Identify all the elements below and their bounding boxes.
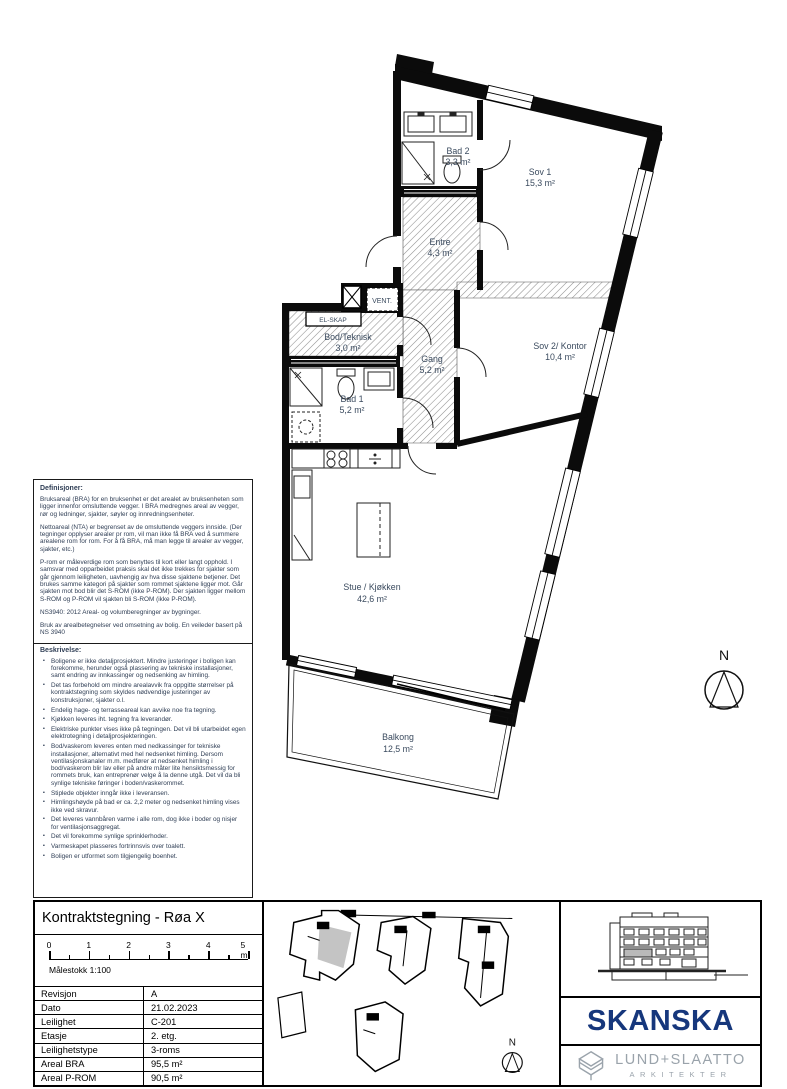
bad2-bottom-wall [400, 186, 480, 197]
description-bullet: Varmeskapet plasseres fortrinnsvis over … [51, 843, 246, 850]
title-block-table: Revisjon A Dato 21.02.2023 Leilighet C-2… [35, 987, 262, 1085]
left-wall-stue [282, 445, 290, 660]
scale-tick-label: 4 [206, 940, 211, 950]
svg-text:5,2 m²: 5,2 m² [420, 365, 445, 375]
scale-tick-label: 3 [166, 940, 171, 950]
scale-ruler [49, 950, 248, 960]
description-bullet: Det vil forekomme synlige sprinklerhoder… [51, 833, 246, 840]
row-value: 3-roms [143, 1044, 262, 1057]
sov2-bottom-wall [457, 414, 587, 444]
row-value: 21.02.2023 [143, 1001, 262, 1014]
table-row: Revisjon A [35, 987, 262, 1001]
scale-tick-label: 2 [126, 940, 131, 950]
door-sov1 [480, 222, 508, 250]
row-label: Revisjon [35, 987, 143, 1000]
room-label-bod: Bod/Teknisk [324, 332, 372, 342]
definitions-title: Definisjoner: [40, 485, 246, 492]
description-bullet: Kjøkken leveres iht. tegning fra leveran… [51, 716, 246, 723]
branding-column: SKANSKA LUND+SLAATTO ARKITEKTER [561, 902, 760, 1085]
definition-paragraph: NS3940: 2012 Areal- og volumberegninger … [40, 609, 246, 616]
description-bullet: Elektriske punkter vises ikke på tegning… [51, 726, 246, 741]
description-bullet: Det tas forbehold om mindre arealavvik f… [51, 682, 246, 704]
description-bullet: Endelig hage- og terrasseareal kan avvik… [51, 707, 246, 714]
corridor-wall-a [477, 100, 483, 140]
room-label-balkong: Balkong [382, 732, 414, 742]
north-arrow: N [705, 647, 743, 709]
drawing-title: Kontraktstegning - Røa X [35, 902, 262, 935]
bod-gang-wall-a [397, 311, 403, 317]
building-elevation-icon [562, 903, 759, 995]
bad1-right-wall-a [397, 367, 403, 398]
definition-paragraph: Bruk av arealbetegnelser ved omsetning a… [40, 622, 246, 637]
svg-text:3,3 m²: 3,3 m² [446, 157, 471, 167]
gang-bottom-wall-b [436, 443, 457, 449]
skanska-logo: SKANSKA [561, 998, 760, 1046]
row-label: Etasje [35, 1029, 143, 1042]
room-label-sov1: Sov 1 [529, 167, 552, 177]
row-value: 90,5 m² [143, 1072, 262, 1085]
building-elevation-cell [561, 902, 760, 998]
svg-text:42,6 m²: 42,6 m² [357, 594, 387, 604]
scale-bar: 0 1 2 3 4 5 m Målestokk 1:100 [35, 935, 262, 987]
row-value: C-201 [143, 1015, 262, 1028]
gang-wall-b [454, 377, 460, 445]
key-plan-cell: N [264, 902, 561, 1085]
row-value: A [143, 987, 262, 1000]
description-bullet: Bod/vaskerom leveres enten med nedkassin… [51, 743, 246, 787]
row-value: 95,5 m² [143, 1058, 262, 1071]
title-block: Kontraktstegning - Røa X 0 1 2 3 4 5 m [33, 900, 762, 1087]
row-label: Areal P-ROM [35, 1072, 143, 1085]
definitions-panel: Definisjoner: Bruksareal (BRA) for en br… [33, 479, 253, 898]
room-label-stue: Stue / Kjøkken [343, 582, 400, 592]
door-stue [408, 446, 436, 474]
left-wall-upper [393, 71, 401, 236]
room-label-gang: Gang [421, 354, 443, 364]
lund-slaatto-mark-icon [575, 1048, 607, 1084]
door-bad2 [480, 140, 510, 170]
room-label-bad2: Bad 2 [447, 146, 470, 156]
table-row: Leilighet C-201 [35, 1015, 262, 1029]
svg-text:N: N [509, 1038, 516, 1049]
stue-top-wall [287, 443, 403, 449]
room-label-entre: Entre [429, 237, 450, 247]
room-label-sov2: Sov 2/ Kontor [533, 341, 586, 351]
description-bullet: Boligen er utformet som tilgjengelig boe… [51, 853, 246, 860]
description-bullet: Himlingshøyde på bad er ca. 2,2 meter og… [51, 799, 246, 814]
table-row: Leilighetstype 3-roms [35, 1044, 262, 1058]
table-row: Etasje 2. etg. [35, 1029, 262, 1043]
row-label: Leilighet [35, 1015, 143, 1028]
north-label: N [719, 647, 729, 663]
vent-label: VENT. [372, 298, 392, 305]
key-plan: N [264, 902, 559, 1085]
architect-logo: LUND+SLAATTO ARKITEKTER [561, 1046, 760, 1085]
gang-bottom-wall-a [403, 443, 408, 449]
svg-text:12,5 m²: 12,5 m² [383, 744, 413, 754]
table-row: Areal BRA 95,5 m² [35, 1058, 262, 1072]
row-label: Leilighetstype [35, 1044, 143, 1057]
corridor-wall-c [477, 250, 483, 290]
el-skap-label: EL-SKAP [319, 317, 346, 324]
contract-drawing-page: Bad 2 3,3 m² Sov 1 15,3 m² Entre 4,3 m² … [0, 0, 787, 1089]
definition-paragraph: Bruksareal (BRA) for en bruksenhet er de… [40, 496, 246, 518]
room-label-bad1: Bad 1 [341, 394, 364, 404]
scale-label: Målestokk 1:100 [49, 965, 248, 975]
architect-subtitle: ARKITEKTER [629, 1070, 731, 1079]
scale-tick-label: 0 [47, 940, 52, 950]
table-row: Dato 21.02.2023 [35, 1001, 262, 1015]
svg-text:5,2 m²: 5,2 m² [340, 405, 365, 415]
description-bullet: Det leveres vannbåren varme i alle rom, … [51, 816, 246, 831]
definition-paragraph: Nettoareal (NTA) er begrenset av de omsl… [40, 524, 246, 553]
description-title: Beskrivelse: [40, 647, 246, 654]
key-plan-outline-extra [278, 992, 306, 1038]
floor-plan: Bad 2 3,3 m² Sov 1 15,3 m² Entre 4,3 m² … [255, 45, 775, 815]
svg-text:15,3 m²: 15,3 m² [525, 178, 555, 188]
definition-paragraph: P-rom er måleverdige rom som benyttes ti… [40, 559, 246, 603]
row-value: 2. etg. [143, 1029, 262, 1042]
bad1-top-wall [287, 356, 400, 367]
row-label: Areal BRA [35, 1058, 143, 1071]
description-section: Beskrivelse: Boligene er ikke detaljpros… [34, 643, 252, 861]
bad1-right-wall-b [397, 428, 403, 445]
scale-tick-label: 1 [86, 940, 91, 950]
bod-top-wall [286, 303, 343, 311]
row-label: Dato [35, 1001, 143, 1014]
key-plan-unit-d [355, 1002, 403, 1072]
title-block-info: Kontraktstegning - Røa X 0 1 2 3 4 5 m [35, 902, 264, 1085]
description-bullet-list: Boligene er ikke detaljprosjektert. Mind… [40, 658, 246, 861]
door-entrance [366, 236, 397, 267]
svg-text:10,4 m²: 10,4 m² [545, 352, 575, 362]
bod-gang-wall-b [397, 345, 403, 356]
description-bullet: Stiplede objekter inngår ikke i leverans… [51, 790, 246, 797]
svg-text:4,3 m²: 4,3 m² [428, 248, 453, 258]
corridor-wall-b [477, 168, 483, 222]
left-wall-mid [282, 303, 289, 445]
svg-text:3,0 m²: 3,0 m² [336, 343, 361, 353]
gang-wall-a [454, 290, 460, 348]
table-row: Areal P-ROM 90,5 m² [35, 1072, 262, 1085]
architect-name: LUND+SLAATTO [615, 1052, 746, 1068]
door-sov2 [457, 348, 486, 377]
key-plan-north-arrow: N [502, 1038, 522, 1073]
scale-numbers: 0 1 2 3 4 5 m [49, 940, 248, 950]
description-bullet: Boligene er ikke detaljprosjektert. Mind… [51, 658, 246, 680]
